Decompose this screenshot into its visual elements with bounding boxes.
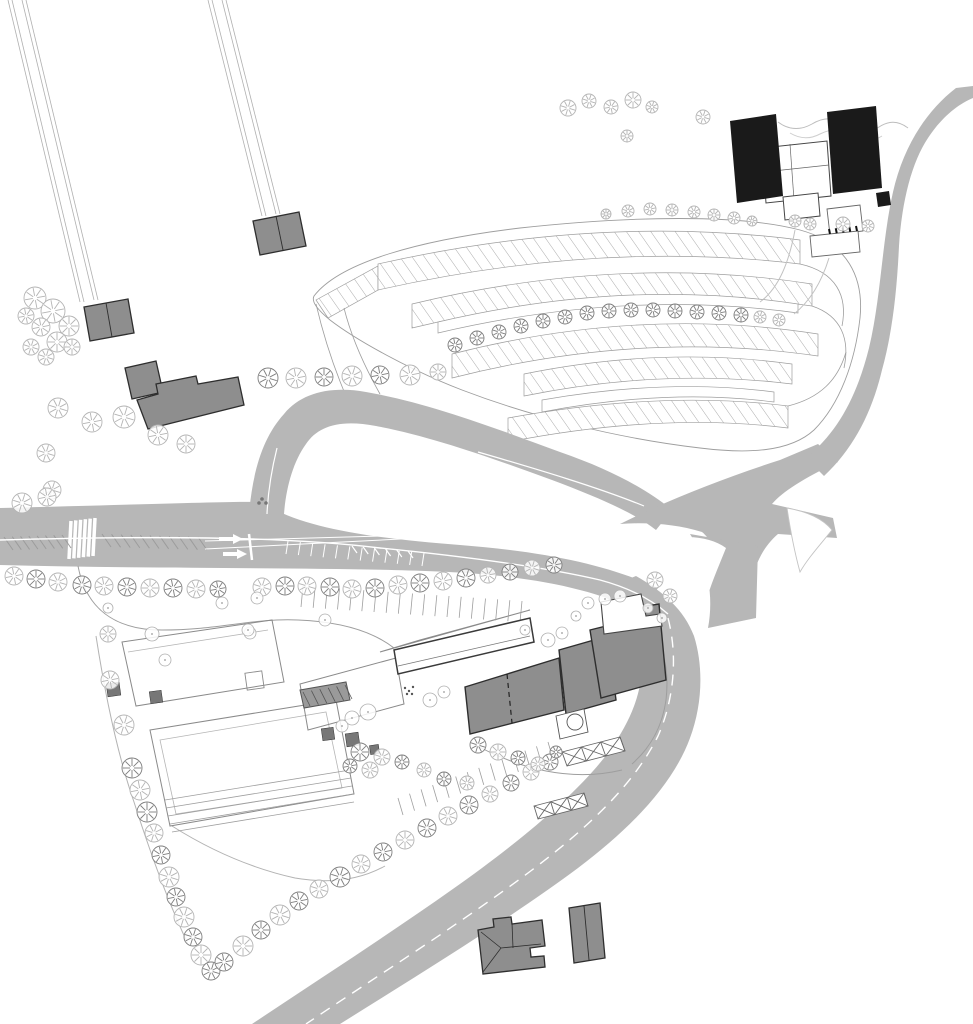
tree [688, 206, 700, 218]
tree [696, 110, 710, 124]
ski-lift-cable [222, 0, 276, 214]
tree [514, 319, 528, 333]
parking-stalls-south [479, 768, 484, 785]
street-parking-stalls [508, 600, 510, 621]
tree [389, 576, 407, 594]
tree-center [443, 691, 445, 693]
tree [524, 560, 540, 576]
tree-center [661, 617, 663, 619]
play-equipment [321, 727, 335, 741]
crosswalk-zebra [69, 521, 71, 559]
tree [330, 867, 350, 887]
tree [690, 305, 704, 319]
hotel-tower-black [730, 114, 783, 203]
tree [362, 762, 378, 778]
entry-furniture [408, 690, 410, 692]
tree-center [524, 629, 526, 631]
parking-stalls-south [410, 794, 415, 811]
tree-center [561, 632, 563, 634]
tree-center [619, 595, 621, 597]
sports-field-inner [160, 712, 342, 814]
tree [48, 398, 68, 418]
street-parking-stalls [423, 594, 425, 615]
tree [310, 880, 328, 898]
tree-center [587, 602, 589, 604]
tree [773, 314, 785, 326]
tree-center [647, 607, 649, 609]
tree-center [351, 717, 353, 719]
hotel-tower-black [827, 106, 882, 194]
pergola-roof [300, 682, 350, 708]
tree [754, 311, 766, 323]
tree [152, 846, 170, 864]
street-parking-stalls [496, 599, 498, 620]
tree [448, 338, 462, 352]
tree [400, 365, 420, 385]
tree [298, 577, 316, 595]
tree [184, 928, 202, 946]
tree [258, 368, 278, 388]
footpath [172, 826, 385, 881]
street-parking-stalls [484, 599, 486, 620]
street-parking-stalls [411, 594, 413, 615]
tree-center [429, 699, 431, 701]
tree [374, 749, 390, 765]
tree [352, 855, 370, 873]
tree [550, 746, 562, 758]
parking-stalls-south [398, 798, 403, 815]
tree [148, 425, 168, 445]
school-block [465, 658, 564, 734]
street-parking-stalls [520, 601, 522, 622]
tree [604, 100, 618, 114]
tree [164, 579, 182, 597]
tree [624, 303, 638, 317]
tree [580, 306, 594, 320]
tree [37, 444, 55, 462]
tree [460, 796, 478, 814]
parking-row-tail [316, 266, 378, 318]
ski-lift-cable [12, 0, 84, 302]
tree [457, 569, 475, 587]
tree [343, 580, 361, 598]
ski-lift-cable [8, 0, 80, 302]
entry-furniture [406, 693, 408, 695]
site-plan [0, 0, 973, 1024]
street-parking-stalls [398, 593, 400, 614]
tree-center [247, 629, 249, 631]
ski-lift-cable [212, 0, 266, 216]
tree [417, 763, 431, 777]
tree-center [221, 602, 223, 604]
play-equipment [149, 690, 163, 704]
tree [5, 567, 23, 585]
tree [560, 100, 576, 116]
tree-center [107, 607, 109, 609]
bike-racks [856, 226, 857, 231]
barn-building [569, 903, 605, 963]
school-north-wing [394, 618, 534, 674]
tree [49, 573, 67, 591]
plan-layers [0, 0, 973, 1024]
tree [215, 953, 233, 971]
tree [38, 349, 54, 365]
tree [439, 807, 457, 825]
tree [95, 577, 113, 595]
tree [492, 325, 506, 339]
tree [558, 310, 572, 324]
tree [286, 368, 306, 388]
tree [167, 888, 185, 906]
site-plan-canvas [0, 0, 973, 1024]
tree [531, 757, 545, 771]
tree [101, 671, 119, 689]
tree [371, 366, 389, 384]
tree [712, 306, 726, 320]
tree [434, 572, 452, 590]
tree [511, 751, 525, 765]
tree [470, 737, 486, 753]
street-parking-stalls [362, 590, 364, 611]
parking-stalls-south [433, 785, 438, 802]
bike-racks [836, 228, 837, 233]
entry-furniture [404, 687, 406, 689]
crosswalk-zebra [74, 520, 76, 558]
bike-symbol [260, 497, 264, 501]
tree [73, 576, 91, 594]
service-block-black [876, 191, 891, 207]
annex-round [567, 714, 583, 730]
tree [32, 318, 50, 336]
parking-stalls-south [502, 759, 507, 776]
tree [342, 366, 362, 386]
ski-lift-cable [226, 0, 280, 214]
tree [118, 578, 136, 596]
terrace-step [166, 778, 351, 808]
parking-stalls-south [421, 789, 426, 806]
tree-center [604, 598, 606, 600]
tree [290, 892, 308, 910]
tree [38, 488, 56, 506]
tree [418, 819, 436, 837]
tree [374, 843, 392, 861]
tree [622, 205, 634, 217]
tree-center [367, 711, 369, 713]
tree [82, 412, 102, 432]
tree [480, 567, 496, 583]
ski-lift-cable [208, 0, 262, 216]
tree-center [575, 615, 577, 617]
street-parking-stalls [471, 598, 473, 619]
tree [23, 339, 39, 355]
entry-furniture [411, 693, 413, 695]
bike-symbol [264, 501, 268, 505]
tree-center [547, 639, 549, 641]
tree [114, 715, 134, 735]
tree [18, 308, 34, 324]
tree [546, 557, 562, 573]
street-parking-stalls [447, 596, 449, 617]
tree [663, 589, 677, 603]
tree [503, 775, 519, 791]
terrace-step [168, 786, 352, 816]
tree [646, 101, 658, 113]
tree [130, 780, 150, 800]
tree [187, 580, 205, 598]
ski-lift-cable [26, 0, 98, 300]
tree-center [324, 619, 326, 621]
hotel-link-building [783, 193, 820, 220]
tree [343, 759, 357, 773]
tree [210, 581, 226, 597]
terrace-step [172, 802, 354, 832]
crosswalk-zebra [93, 518, 95, 556]
tree [159, 867, 179, 887]
tree-center [164, 659, 166, 661]
bike-symbol [257, 501, 261, 505]
bike-racks [829, 229, 830, 234]
terrace-step [165, 770, 350, 800]
tree [646, 303, 660, 317]
tree [728, 212, 740, 224]
tree [145, 824, 163, 842]
parking-stalls-south [490, 764, 495, 781]
tree-center [151, 633, 153, 635]
tree [12, 493, 32, 513]
ski-lift-cable [22, 0, 94, 300]
tree [174, 907, 194, 927]
street-parking-stalls [435, 595, 437, 616]
terrace-step [170, 794, 353, 824]
terrace-structure [810, 231, 860, 257]
tree [270, 905, 290, 925]
tree [862, 220, 874, 232]
street-parking-stalls [459, 597, 461, 618]
tree [113, 406, 135, 428]
tree [460, 776, 474, 790]
tree [582, 94, 596, 108]
tree-center [256, 597, 258, 599]
entry-furniture [412, 686, 414, 688]
tree [482, 786, 498, 802]
street-parking-stalls [386, 592, 388, 613]
tree [647, 572, 663, 588]
tree [644, 203, 656, 215]
tree-center [341, 725, 343, 727]
tree [747, 216, 757, 226]
